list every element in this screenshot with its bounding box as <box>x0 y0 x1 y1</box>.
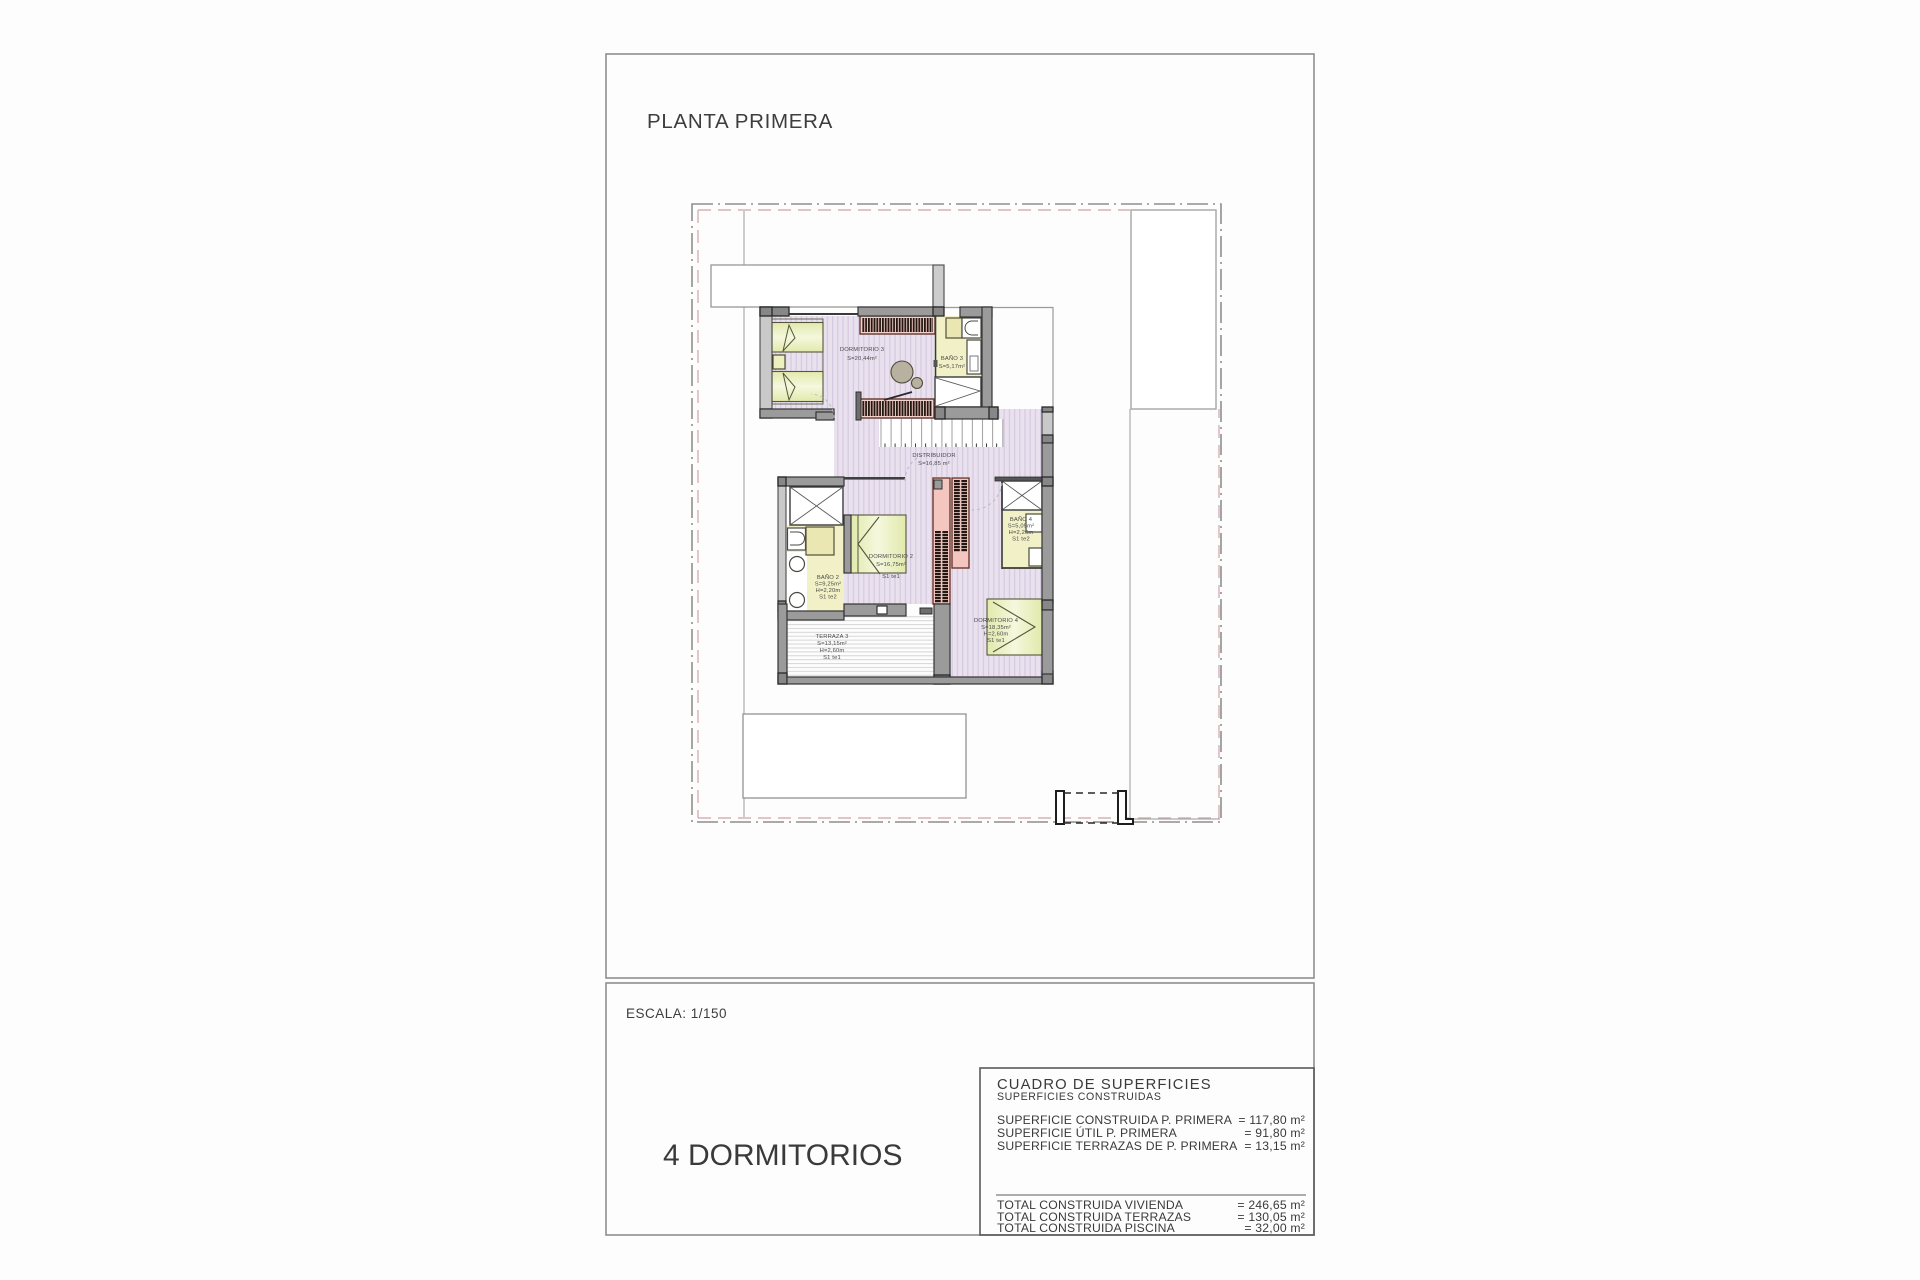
svg-text:BAÑO 4: BAÑO 4 <box>1010 516 1033 523</box>
svg-text:S=5,17m²: S=5,17m² <box>939 364 966 370</box>
svg-text:S1 te2: S1 te2 <box>819 595 837 601</box>
svg-text:SUPERFICIE TERRAZAS DE P. PRIM: SUPERFICIE TERRAZAS DE P. PRIMERA <box>997 1139 1238 1153</box>
svg-text:S=16,75m²: S=16,75m² <box>876 562 906 568</box>
svg-text:SUPERFICIES CONSTRUIDAS: SUPERFICIES CONSTRUIDAS <box>997 1091 1162 1103</box>
svg-text:DORMITORIO 3: DORMITORIO 3 <box>840 347 884 353</box>
svg-text:DISTRIBUIDOR: DISTRIBUIDOR <box>912 453 955 459</box>
svg-text:S=5,05m²: S=5,05m² <box>1008 524 1035 530</box>
svg-text:H=2,60m: H=2,60m <box>984 632 1009 638</box>
svg-text:TERRAZA 3: TERRAZA 3 <box>816 634 849 640</box>
svg-text:SUPERFICIE ÚTIL P. PRIMERA: SUPERFICIE ÚTIL P. PRIMERA <box>997 1125 1178 1140</box>
svg-text:S1 te2: S1 te2 <box>1012 537 1030 543</box>
svg-text:SUPERFICIE CONSTRUIDA P. PRIME: SUPERFICIE CONSTRUIDA P. PRIMERA <box>997 1113 1233 1127</box>
svg-text:S=16,85 m²: S=16,85 m² <box>918 461 950 467</box>
svg-text:S=20,44m²: S=20,44m² <box>847 356 877 362</box>
svg-text:S1 te1: S1 te1 <box>882 574 900 580</box>
svg-text:= 117,80 m²: = 117,80 m² <box>1238 1113 1305 1127</box>
svg-text:S=13,15m²: S=13,15m² <box>817 641 847 647</box>
svg-text:PLANTA PRIMERA: PLANTA PRIMERA <box>647 110 833 133</box>
svg-text:= 32,00 m²: = 32,00 m² <box>1244 1221 1305 1235</box>
svg-text:DORMITORIO 4: DORMITORIO 4 <box>974 618 1019 624</box>
svg-text:S=9,25m²: S=9,25m² <box>815 582 842 588</box>
svg-text:ESCALA: 1/150: ESCALA: 1/150 <box>626 1006 727 1021</box>
svg-text:H=2,20m: H=2,20m <box>816 588 841 594</box>
svg-text:S=18,35m²: S=18,35m² <box>981 625 1011 631</box>
svg-text:H=2,60m: H=2,60m <box>820 648 845 654</box>
svg-text:= 91,80 m²: = 91,80 m² <box>1244 1126 1305 1140</box>
svg-text:S1 te1: S1 te1 <box>823 655 841 661</box>
svg-text:S1 te1: S1 te1 <box>987 638 1005 644</box>
svg-text:= 13,15 m²: = 13,15 m² <box>1244 1139 1305 1153</box>
svg-text:BAÑO 3: BAÑO 3 <box>941 355 963 362</box>
svg-text:4 DORMITORIOS: 4 DORMITORIOS <box>663 1139 902 1172</box>
svg-text:TOTAL CONSTRUIDA PISCINA: TOTAL CONSTRUIDA PISCINA <box>997 1221 1176 1235</box>
svg-text:BAÑO 2: BAÑO 2 <box>817 574 839 581</box>
svg-text:DORMITORIO 2: DORMITORIO 2 <box>869 554 913 560</box>
svg-text:H=2,20m: H=2,20m <box>1009 530 1034 536</box>
